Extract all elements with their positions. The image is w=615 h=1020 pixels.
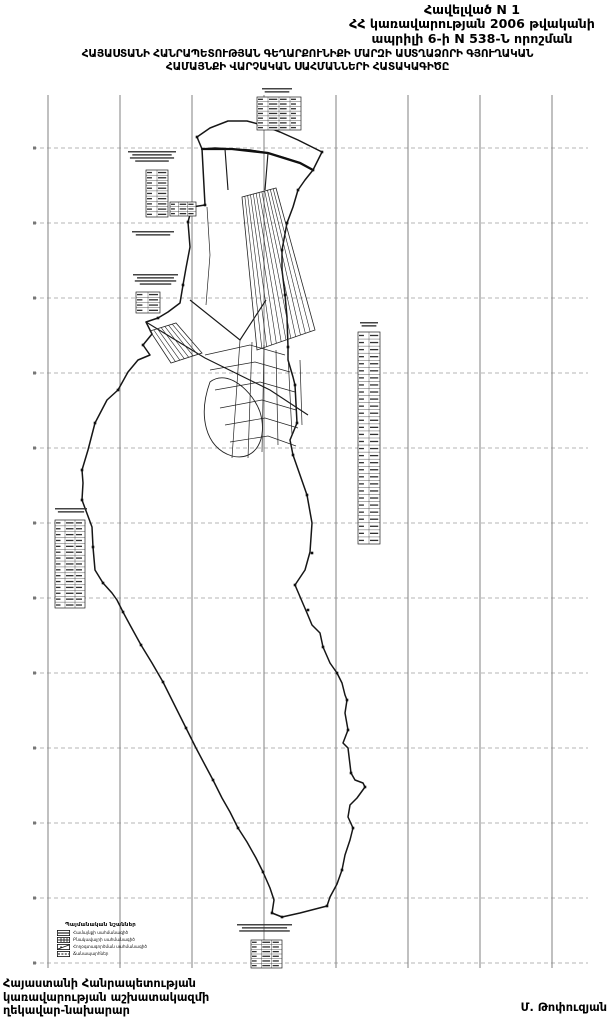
- micro-text-line: [58, 511, 84, 512]
- table-cell-text: [66, 563, 74, 564]
- label-east-table-header: [360, 322, 378, 327]
- table-cell-text: [370, 526, 378, 527]
- micro-text-line: [237, 924, 292, 926]
- table-cell-text: [359, 398, 364, 399]
- table-cell-text: [158, 214, 166, 215]
- table-cell-text: [158, 172, 166, 173]
- table-cell-text: [149, 294, 158, 295]
- table-cell-text: [273, 951, 279, 952]
- label-bottom-table-header: [237, 924, 292, 932]
- boundary-point: [281, 916, 284, 919]
- table-cell-text: [147, 214, 152, 215]
- micro-text-line: [132, 231, 174, 233]
- map-legend: Պայմանական նշաններ Համայնքի սահմանագիծԲն…: [57, 922, 197, 958]
- table-cell-text: [370, 462, 378, 463]
- table-cell-text: [359, 462, 364, 463]
- table-west: [55, 520, 85, 608]
- table-cell-text: [359, 342, 364, 343]
- boundary-point: [307, 609, 310, 612]
- boundary-point: [321, 151, 324, 154]
- community-boundary-symbol-icon: [57, 930, 70, 936]
- table-cell-text: [147, 208, 152, 209]
- table-cell-text: [252, 960, 257, 961]
- landuse-boundary-symbol-icon: [57, 944, 70, 950]
- table-cell-text: [147, 203, 152, 204]
- boundary-point: [196, 136, 199, 139]
- table-cell-text: [56, 540, 61, 541]
- table-top-center: [257, 97, 301, 130]
- table-cell-text: [149, 304, 158, 305]
- table-left-upper: [146, 170, 168, 217]
- table-cell-text: [137, 304, 142, 305]
- table-cell-text: [280, 108, 287, 109]
- table-cell-text: [56, 546, 61, 547]
- table-cell-text: [188, 208, 193, 209]
- boundary-point: [81, 469, 84, 472]
- graticule: [33, 95, 588, 968]
- table-cell-text: [158, 188, 166, 189]
- micro-text-line: [135, 280, 176, 282]
- cadastral-map: [0, 0, 615, 1020]
- table-cell-text: [158, 203, 166, 204]
- table-cell-text: [76, 581, 82, 582]
- table-cell-text: [273, 965, 279, 966]
- label-northwest: [128, 151, 176, 162]
- table-cell-text: [273, 956, 279, 957]
- table-cell-text: [66, 593, 74, 594]
- boundary-point: [364, 786, 367, 789]
- micro-text-line: [135, 160, 169, 162]
- boundary-point: [92, 546, 95, 549]
- table-cell-text: [76, 552, 82, 553]
- table-cell-text: [359, 384, 364, 385]
- legend-item: Համայնքի սահմանագիծ: [57, 930, 197, 936]
- micro-text-line: [128, 151, 176, 153]
- table-cell-text: [359, 363, 364, 364]
- table-cell-text: [158, 208, 166, 209]
- table-cell-text: [171, 204, 175, 205]
- table-cell-text: [66, 604, 74, 605]
- table-cell-text: [56, 563, 61, 564]
- legend-title: Պայմանական նշաններ: [65, 922, 197, 928]
- table-cell-text: [359, 469, 364, 470]
- table-cell-text: [76, 528, 82, 529]
- table-cell-text: [252, 951, 257, 952]
- table-cell-text: [370, 483, 378, 484]
- table-cell-text: [359, 519, 364, 520]
- table-cell-text: [66, 575, 74, 576]
- signatory-position-line3: ղեկավար-նախարար: [3, 1004, 209, 1018]
- table-cell-text: [291, 122, 296, 123]
- table-cell-text: [370, 342, 378, 343]
- graticule-edge-tick: [33, 147, 36, 150]
- table-cell-text: [56, 575, 61, 576]
- table-cell-text: [262, 965, 270, 966]
- table-cell-text: [359, 377, 364, 378]
- table-cell-text: [370, 349, 378, 350]
- table-cell-text: [269, 127, 277, 128]
- boundary-point: [312, 169, 315, 172]
- table-cell-text: [291, 127, 296, 128]
- boundary-point: [81, 499, 84, 502]
- table-cell-text: [66, 581, 74, 582]
- boundary-point: [142, 344, 145, 347]
- table-left-small: [170, 202, 196, 216]
- boundary-point: [297, 189, 300, 192]
- table-cell-text: [370, 504, 378, 505]
- boundary-point: [292, 454, 295, 457]
- table-cell-text: [359, 349, 364, 350]
- table-cell-text: [273, 942, 279, 943]
- boundary-point: [306, 494, 309, 497]
- micro-text-line: [130, 157, 174, 159]
- table-cell-text: [370, 448, 378, 449]
- strip-parcel-line: [157, 329, 179, 360]
- table-bottom: [251, 940, 282, 968]
- table-east: [358, 332, 380, 544]
- main-road: [202, 149, 313, 170]
- table-cell-text: [269, 108, 277, 109]
- table-cell-text: [370, 363, 378, 364]
- boundary-point: [157, 317, 160, 320]
- table-cell-text: [370, 469, 378, 470]
- boundary-point: [187, 221, 190, 224]
- table-cell-text: [359, 420, 364, 421]
- table-cell-text: [280, 113, 287, 114]
- table-cell-text: [280, 118, 287, 119]
- table-cell-text: [76, 540, 82, 541]
- table-cell-text: [370, 490, 378, 491]
- table-cell-text: [56, 581, 61, 582]
- table-cell-text: [359, 504, 364, 505]
- table-cell-text: [291, 103, 296, 104]
- table-cell-text: [137, 299, 142, 300]
- table-cell-text: [66, 599, 74, 600]
- boundary-point: [296, 422, 299, 425]
- strip-parcel-line: [256, 193, 281, 341]
- table-cell-text: [370, 434, 378, 435]
- table-cell-text: [359, 490, 364, 491]
- graticule-edge-tick: [33, 297, 36, 300]
- table-cell-text: [56, 552, 61, 553]
- graticule-edge-tick: [33, 672, 36, 675]
- micro-text-line: [265, 91, 290, 93]
- table-cell-text: [56, 522, 61, 523]
- table-cell-text: [370, 335, 378, 336]
- boundary-point: [341, 869, 344, 872]
- micro-text-line: [133, 274, 178, 276]
- boundary-point: [212, 779, 215, 782]
- table-cell-text: [370, 413, 378, 414]
- table-cell-text: [252, 942, 257, 943]
- table-cell-text: [76, 569, 82, 570]
- legend-item: Ճանապարհներ: [57, 951, 197, 957]
- table-cell-text: [370, 519, 378, 520]
- table-cell-text: [76, 557, 82, 558]
- micro-text-line: [136, 234, 170, 236]
- label-west-1: [132, 231, 174, 236]
- boundary-point: [237, 827, 240, 830]
- micro-tables: [55, 97, 380, 968]
- table-cell-text: [280, 99, 287, 100]
- table-cell-text: [258, 127, 263, 128]
- table-cell-text: [56, 587, 61, 588]
- boundary-point: [326, 905, 329, 908]
- table-cell-text: [280, 127, 287, 128]
- table-cell-text: [147, 172, 152, 173]
- signatory-name: Մ. Թոփուզյան: [521, 1001, 607, 1014]
- table-cell-text: [149, 310, 158, 311]
- table-cell-text: [370, 497, 378, 498]
- table-cell-text: [76, 593, 82, 594]
- boundary-point: [271, 912, 274, 915]
- table-cell-text: [291, 99, 296, 100]
- table-cell-text: [66, 528, 74, 529]
- table-cell-text: [252, 946, 257, 947]
- micro-text-line: [132, 154, 171, 156]
- table-cell-text: [280, 122, 287, 123]
- micro-text-line: [242, 927, 287, 929]
- table-cell-text: [76, 587, 82, 588]
- table-cell-text: [370, 512, 378, 513]
- table-cell-text: [158, 182, 166, 183]
- legend-items: Համայնքի սահմանագիծԲնակավայրի սահմանագիծ…: [57, 930, 197, 957]
- table-cell-text: [262, 942, 270, 943]
- boundary-point: [336, 672, 339, 675]
- graticule-edge-tick: [33, 897, 36, 900]
- table-cell-text: [56, 569, 61, 570]
- settlement-boundary-symbol-icon: [57, 937, 70, 943]
- boundary-point: [352, 827, 355, 830]
- table-cell-text: [66, 534, 74, 535]
- boundary-point: [117, 389, 120, 392]
- label-west-2: [133, 274, 178, 285]
- table-cell-text: [262, 946, 270, 947]
- table-cell-text: [359, 391, 364, 392]
- table-cell-text: [76, 599, 82, 600]
- table-cell-text: [359, 335, 364, 336]
- strip-parcel-line: [169, 325, 194, 356]
- boundary-point: [284, 294, 287, 297]
- legend-item-label: Ճանապարհներ: [73, 952, 108, 956]
- table-cell-text: [158, 193, 166, 194]
- table-cell-text: [359, 434, 364, 435]
- road-symbol-icon: [57, 951, 70, 957]
- table-cell-text: [137, 310, 142, 311]
- table-cell-text: [258, 99, 263, 100]
- table-cell-text: [262, 951, 270, 952]
- table-cell-text: [280, 103, 287, 104]
- table-cell-text: [370, 476, 378, 477]
- label-top-table-header: [262, 88, 292, 93]
- boundary-point: [346, 699, 349, 702]
- graticule-edge-tick: [33, 597, 36, 600]
- boundary-point: [185, 727, 188, 730]
- table-cell-text: [66, 557, 74, 558]
- table-cell-text: [180, 208, 187, 209]
- table-cell-text: [269, 99, 277, 100]
- table-cell-text: [370, 420, 378, 421]
- table-cell-text: [66, 522, 74, 523]
- table-cell-text: [359, 526, 364, 527]
- boundary-point: [162, 681, 165, 684]
- boundary-point: [204, 204, 207, 207]
- table-cell-text: [359, 476, 364, 477]
- community-boundary: [82, 149, 365, 917]
- table-cell-text: [359, 540, 364, 541]
- boundary-point: [287, 346, 290, 349]
- table-cell-text: [56, 528, 61, 529]
- legend-item-label: Բնակավայրի սահմանագիծ: [73, 938, 135, 942]
- table-cell-text: [252, 956, 257, 957]
- table-cell-text: [273, 946, 279, 947]
- table-cell-text: [147, 188, 152, 189]
- micro-text-line: [360, 322, 378, 324]
- boundary-point: [281, 249, 284, 252]
- table-cell-text: [258, 118, 263, 119]
- table-cell-text: [273, 960, 279, 961]
- table-cell-text: [359, 356, 364, 357]
- table-cell-text: [359, 441, 364, 442]
- table-cell-text: [258, 103, 263, 104]
- boundary-point: [286, 222, 289, 225]
- table-cell-text: [76, 575, 82, 576]
- legend-item-label: Հողօգտագործման սահմանագիծ: [73, 945, 147, 949]
- boundary-point: [94, 422, 97, 425]
- table-cell-text: [359, 455, 364, 456]
- table-cell-text: [147, 198, 152, 199]
- strip-parcel-line: [154, 330, 176, 362]
- table-cell-text: [359, 483, 364, 484]
- table-cell-text: [56, 534, 61, 535]
- table-cell-text: [56, 593, 61, 594]
- boundary-point: [294, 384, 297, 387]
- strip-parcel-line: [268, 190, 301, 335]
- graticule-edge-tick: [33, 962, 36, 965]
- table-cell-text: [370, 356, 378, 357]
- signature-block: Հայաստանի Հանրապետության կառավարության ա…: [3, 977, 209, 1018]
- table-cell-text: [359, 512, 364, 513]
- micro-text-line: [362, 325, 377, 327]
- micro-text-line: [239, 930, 290, 932]
- table-cell-text: [262, 956, 270, 957]
- table-cell-text: [158, 177, 166, 178]
- table-cell-text: [66, 587, 74, 588]
- micro-text-blocks: [55, 88, 378, 932]
- table-cell-text: [359, 497, 364, 498]
- table-cell-text: [252, 965, 257, 966]
- table-cell-text: [56, 604, 61, 605]
- graticule-edge-tick: [33, 447, 36, 450]
- table-cell-text: [269, 113, 277, 114]
- graticule-edge-tick: [33, 822, 36, 825]
- table-cell-text: [359, 413, 364, 414]
- table-cell-text: [359, 406, 364, 407]
- table-cell-text: [269, 122, 277, 123]
- table-cell-text: [66, 546, 74, 547]
- strip-parcel-line: [172, 324, 197, 354]
- graticule-edge-tick: [33, 522, 36, 525]
- table-cell-text: [291, 108, 296, 109]
- micro-text-line: [137, 277, 174, 279]
- table-cell-text: [76, 604, 82, 605]
- table-cell-text: [180, 213, 187, 214]
- table-cell-text: [66, 552, 74, 553]
- legend-item: Բնակավայրի սահմանագիծ: [57, 937, 197, 943]
- graticule-edge-tick: [33, 222, 36, 225]
- table-cell-text: [258, 113, 263, 114]
- table-cell-text: [147, 177, 152, 178]
- table-cell-text: [370, 370, 378, 371]
- table-cell-text: [359, 370, 364, 371]
- graticule-edge-tick: [33, 372, 36, 375]
- table-cell-text: [370, 377, 378, 378]
- table-cell-text: [258, 122, 263, 123]
- label-west-table-header: [55, 508, 87, 513]
- table-cell-text: [370, 427, 378, 428]
- table-cell-text: [258, 108, 263, 109]
- table-cell-text: [56, 599, 61, 600]
- table-cell-text: [370, 540, 378, 541]
- table-cell-text: [269, 103, 277, 104]
- table-cell-text: [147, 193, 152, 194]
- boundary-point: [311, 552, 314, 555]
- document-page: Հավելված N 1 ՀՀ կառավարության 2006 թվակա…: [0, 0, 615, 1020]
- legend-item: Հողօգտագործման սահմանագիծ: [57, 944, 197, 950]
- table-cell-text: [180, 204, 187, 205]
- table-cell-text: [76, 534, 82, 535]
- table-cell-text: [76, 546, 82, 547]
- boundary-point: [182, 284, 185, 287]
- table-cell-text: [147, 182, 152, 183]
- table-cell-text: [370, 455, 378, 456]
- table-cell-text: [359, 533, 364, 534]
- signatory-position-line1: Հայաստանի Հանրապետության: [3, 977, 209, 991]
- table-cell-text: [359, 427, 364, 428]
- graticule-edge-tick: [33, 747, 36, 750]
- table-cell-text: [188, 204, 193, 205]
- signatory-position-line2: կառավարության աշխատակազմի: [3, 991, 209, 1005]
- micro-text-line: [55, 508, 87, 510]
- strip-parcel-line: [245, 196, 262, 348]
- table-cell-text: [359, 448, 364, 449]
- micro-text-line: [140, 283, 172, 285]
- table-cell-text: [137, 294, 142, 295]
- table-cell-text: [66, 569, 74, 570]
- table-cell-text: [370, 533, 378, 534]
- table-cell-text: [370, 441, 378, 442]
- boundary-point: [102, 582, 105, 585]
- table-cell-text: [269, 118, 277, 119]
- table-cell-text: [370, 398, 378, 399]
- table-cell-text: [188, 213, 193, 214]
- table-cell-text: [76, 563, 82, 564]
- micro-text-line: [262, 88, 292, 90]
- table-cell-text: [370, 384, 378, 385]
- legend-item-label: Համայնքի սահմանագիծ: [73, 931, 128, 935]
- strip-parcel-line: [251, 195, 272, 345]
- table-cell-text: [171, 208, 175, 209]
- boundary-point: [262, 871, 265, 874]
- table-cell-text: [370, 391, 378, 392]
- table-cell-text: [171, 213, 175, 214]
- boundary-point: [322, 646, 325, 649]
- table-cell-text: [76, 522, 82, 523]
- table-cell-text: [291, 118, 296, 119]
- boundary-point: [350, 772, 353, 775]
- strip-parcel-line: [165, 326, 189, 357]
- table-left-mid: [136, 292, 160, 313]
